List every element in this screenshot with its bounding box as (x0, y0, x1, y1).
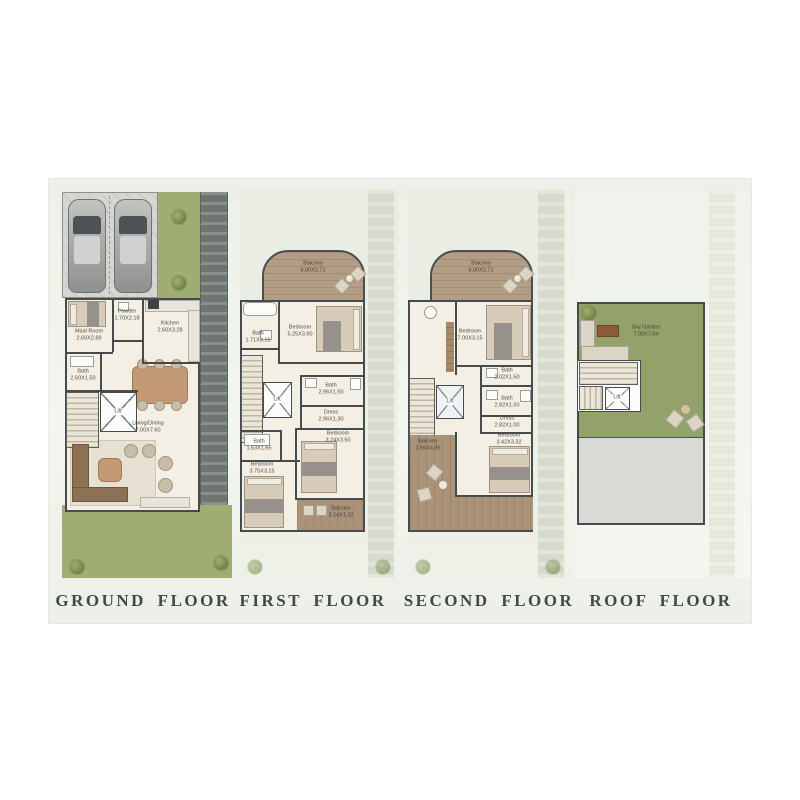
dining-chair (137, 400, 148, 411)
wall (480, 385, 533, 387)
room-name: Bath (494, 368, 519, 375)
room-name: Bath (245, 331, 270, 338)
room-label-bath: Bath 1.63X1.65 (246, 439, 271, 454)
room-name: Balcony (300, 261, 325, 268)
room-name: Balcony (328, 506, 353, 513)
wall (300, 375, 302, 428)
wall (278, 362, 365, 364)
room-name: Lift (273, 396, 280, 403)
room-name: Living/Dining (132, 421, 164, 428)
wall (240, 348, 279, 350)
room-dims: 3.24X1.32 (328, 513, 353, 520)
plant-icon (376, 560, 390, 574)
room-label-bath: Bath 2.02X1.50 (494, 368, 519, 383)
dining-chair (154, 400, 165, 411)
armchair (124, 444, 138, 458)
outdoor-sofa (580, 320, 595, 348)
toilet (520, 390, 531, 402)
wall (112, 298, 114, 352)
room-name: Lift (613, 394, 620, 401)
balcony-table (513, 274, 522, 283)
wall (142, 362, 200, 364)
balcony-table (345, 274, 354, 283)
room-name: Bedroom (496, 433, 521, 440)
coffee-table (597, 325, 619, 337)
outdoor-sofa (581, 346, 629, 361)
wall (65, 352, 113, 354)
floor-title-second: SECOND FLOOR (404, 591, 575, 611)
room-name: Bedroom (325, 431, 350, 438)
room-label-bedroom: Bedroom 3.42X3.32 (496, 433, 521, 448)
room-dims: 2.60X2.89 (75, 336, 103, 343)
room-label-lift: Lift (272, 396, 281, 403)
room-label-lift: Lift (612, 394, 621, 401)
wardrobe (446, 322, 454, 372)
room-dims: 1.71X3.15 (245, 338, 270, 345)
room-label-balcony: Balcony 6.00X2.71 (468, 261, 493, 276)
room-label-bedroom: Bedroom 7.00X3.15 (457, 329, 482, 344)
room-name: Powder (114, 309, 139, 316)
armchair (158, 478, 173, 493)
floor-title-ground: GROUND FLOOR (55, 591, 230, 611)
bed (486, 305, 531, 360)
room-dims: 2.96X1.50 (318, 390, 343, 397)
stairs (579, 386, 603, 410)
room-dims: 2.02X1.50 (494, 375, 519, 382)
kitchen-counter (188, 310, 200, 362)
room-dims: 7.00X7.60 (132, 428, 164, 435)
wall (100, 352, 102, 391)
room-label-maid: Maid Room 2.60X2.89 (75, 329, 103, 344)
stove-icon (148, 300, 159, 309)
room-name: Dress (318, 410, 343, 417)
room-dims: 2.96X1.30 (318, 417, 343, 424)
wall (455, 432, 457, 495)
tv-console (140, 497, 190, 508)
bath-sink (305, 378, 317, 388)
plant-icon (172, 276, 186, 290)
dining-table (132, 366, 188, 404)
parking-divider (109, 196, 110, 294)
side-walkway (368, 190, 394, 578)
room-name: Sky Garden (631, 325, 660, 332)
room-dims: 1.70X2.18 (114, 316, 139, 323)
floor-title-roof: ROOF FLOOR (589, 591, 732, 611)
room-name: Balcony (415, 439, 440, 446)
bed (301, 441, 337, 493)
room-label-balcony: Balcony 3.24X1.32 (328, 506, 353, 521)
toilet (350, 378, 361, 390)
bath-tub (243, 302, 277, 316)
room-label-bedroom: Bedroom 3.24X3.50 (325, 431, 350, 446)
car-icon (68, 199, 106, 293)
plant-icon (248, 560, 262, 574)
room-label-lift: Lift (113, 408, 122, 415)
wall (295, 428, 365, 430)
side-walkway (709, 190, 735, 578)
floor-title-first: FIRST FLOOR (240, 591, 387, 611)
stairs (66, 392, 99, 448)
room-label-bedroom: Bedroom 3.75X3.15 (249, 462, 274, 477)
room-label-bath: Bath 1.71X3.15 (245, 331, 270, 346)
roof-gray-area (579, 437, 703, 523)
plant-icon (416, 560, 430, 574)
room-label-kitchen: Kitchen 2.60X3.28 (157, 321, 182, 336)
room-label-powder: Powder 1.70X2.18 (114, 309, 139, 324)
armchair (142, 444, 156, 458)
lounge-chair (303, 505, 314, 516)
room-label-living-dining: Living/Dining 7.00X7.60 (132, 421, 164, 436)
wall (480, 365, 482, 432)
room-name: Bath (70, 369, 95, 376)
room-label-dress: Dress 2.96X1.30 (318, 410, 343, 425)
balcony-table (438, 480, 448, 490)
plant-icon (70, 560, 84, 574)
dining-chair (154, 359, 165, 370)
dining-chair (171, 400, 182, 411)
room-dims: 7.00X3.15 (457, 336, 482, 343)
room-dims: 6.00X2.71 (300, 268, 325, 275)
wall (278, 300, 280, 362)
room-dims: 3.42X3.32 (496, 440, 521, 447)
room-name: Bath (246, 439, 271, 446)
maid-bed (68, 301, 106, 327)
room-label-bath: Bath 2.82X1.50 (494, 396, 519, 411)
wall (300, 375, 365, 377)
room-label-dress: Dress 2.82X1.00 (494, 416, 519, 431)
room-name: Maid Room (75, 329, 103, 336)
bed (244, 476, 284, 528)
room-dims: 2.82X1.00 (494, 423, 519, 430)
floorplan-sheet: Lift Maid Room 2.60X2.89 Powder 1.70X2.1… (0, 0, 800, 800)
car-icon (114, 199, 152, 293)
back-lawn (62, 505, 232, 578)
dining-chair (171, 359, 182, 370)
wall (300, 405, 365, 407)
room-label-bath: Bath 2.60X1.50 (70, 369, 95, 384)
room-name: Bedroom (287, 325, 312, 332)
room-label-bedroom: Bedroom 5.25X3.90 (287, 325, 312, 340)
room-name: Dress (494, 416, 519, 423)
room-name: Lift (446, 398, 453, 405)
room-dims: 2.60X1.50 (70, 376, 95, 383)
room-name: Bath (318, 383, 343, 390)
coffee-table (98, 458, 122, 482)
bed (316, 306, 362, 352)
room-dims: 3.24X3.50 (325, 438, 350, 445)
plant-icon (172, 210, 186, 224)
room-name: Balcony (468, 261, 493, 268)
bed (489, 446, 530, 493)
side-walkway (538, 190, 564, 578)
stairs (579, 362, 638, 385)
wall (295, 498, 365, 500)
wall (142, 298, 144, 362)
wall (455, 365, 533, 367)
side-walkway (200, 192, 228, 522)
room-label-bath: Bath 2.96X1.50 (318, 383, 343, 398)
wall (455, 300, 457, 375)
wall (240, 430, 280, 432)
room-name: Bath (494, 396, 519, 403)
room-dims: 1.63X1.65 (246, 446, 271, 453)
room-dims: 5.25X3.90 (287, 332, 312, 339)
plant-icon (214, 556, 228, 570)
room-name: Bedroom (457, 329, 482, 336)
armchair (158, 456, 173, 471)
wall (455, 495, 533, 497)
room-dims: 2.82X1.50 (494, 403, 519, 410)
room-name: Lift (114, 408, 121, 415)
wall (280, 430, 282, 460)
garden-table (680, 404, 691, 415)
sofa (72, 487, 128, 502)
room-dims: 3.56X4.85 (415, 446, 440, 453)
wall (295, 428, 297, 498)
lounge-chair (316, 505, 327, 516)
room-name: Kitchen (157, 321, 182, 328)
balcony-deck (410, 497, 533, 530)
wall (112, 340, 143, 342)
shower (424, 306, 437, 319)
room-dims: 6.00X2.71 (468, 268, 493, 275)
plant-icon (546, 560, 560, 574)
room-label-balcony: Balcony 6.00X2.71 (300, 261, 325, 276)
room-label-balcony: Balcony 3.56X4.85 (415, 439, 440, 454)
room-dims: 7.00X7.04 (631, 332, 660, 339)
room-dims: 3.75X3.15 (249, 469, 274, 476)
plant-icon (582, 306, 596, 320)
room-label-lift: Lift (445, 398, 454, 405)
bath-tub (70, 356, 94, 367)
room-label-sky-garden: Sky Garden 7.00X7.04 (631, 325, 660, 340)
room-name: Bedroom (249, 462, 274, 469)
room-dims: 2.60X3.28 (157, 328, 182, 335)
